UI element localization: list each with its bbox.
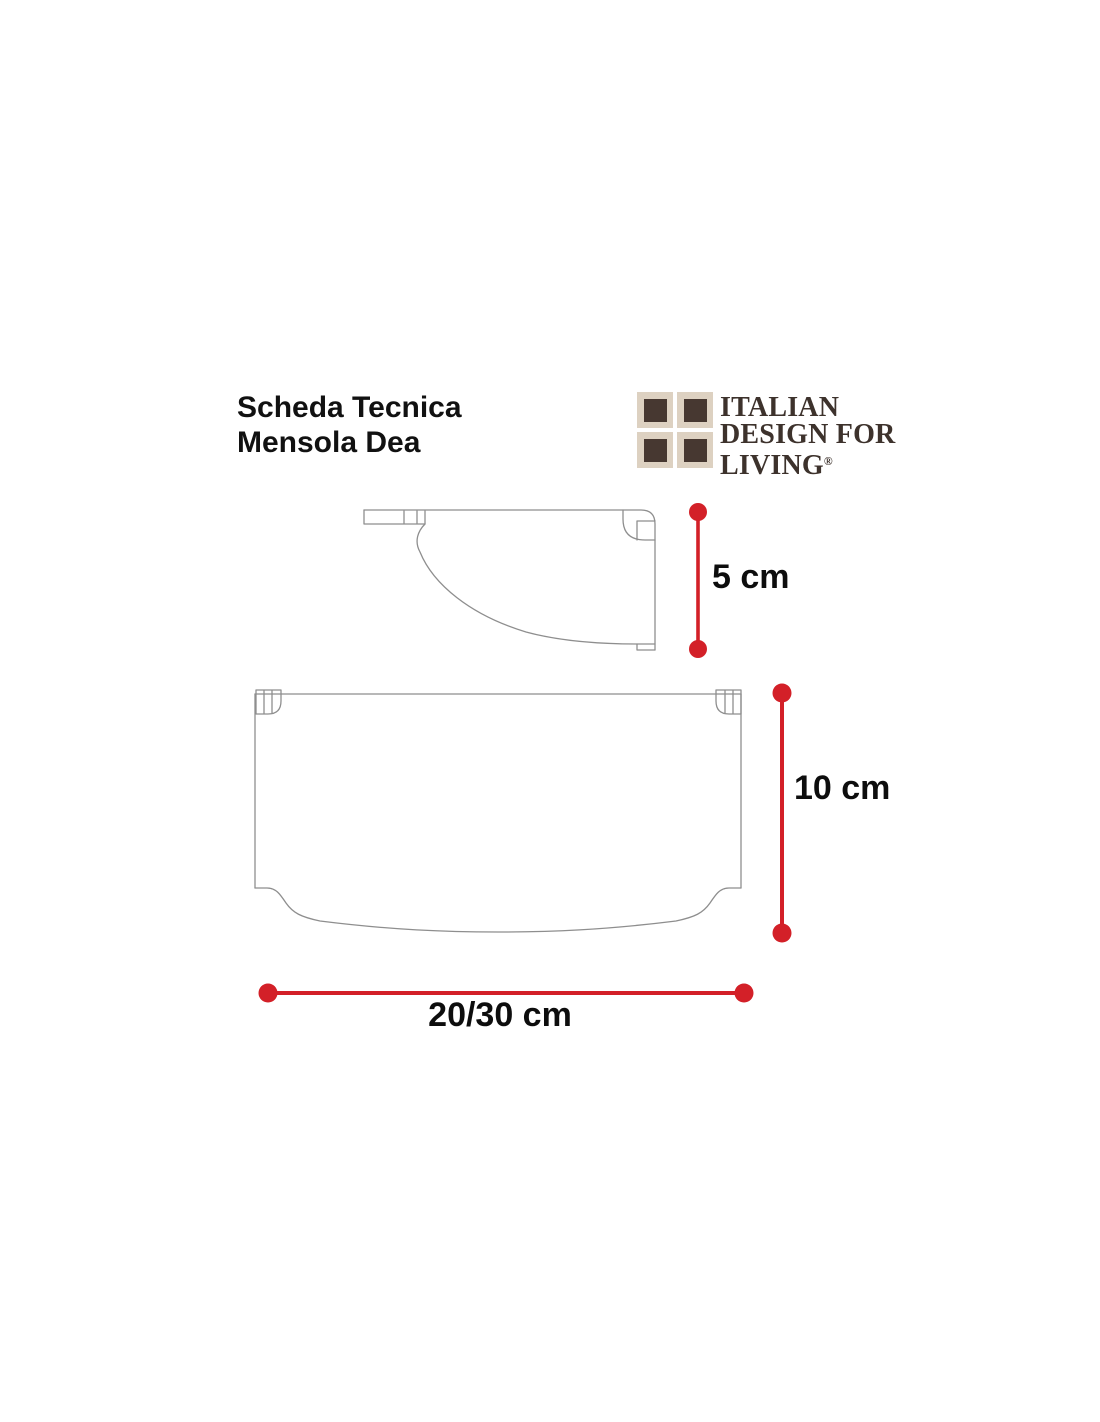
technical-sheet: Scheda Tecnica Mensola Dea ITALIAN DESIG… [0,0,1100,1422]
dimension-label-height: 5 cm [712,558,790,597]
shelf-technical-drawing [0,0,1100,1422]
top-plan-view [255,690,741,932]
side-profile-view [364,510,655,650]
dimension-label-width: 20/30 cm [377,996,623,1035]
dimension-label-depth: 10 cm [794,769,890,808]
dimension-10cm-line [773,684,792,943]
dimension-5cm-line [689,503,707,658]
